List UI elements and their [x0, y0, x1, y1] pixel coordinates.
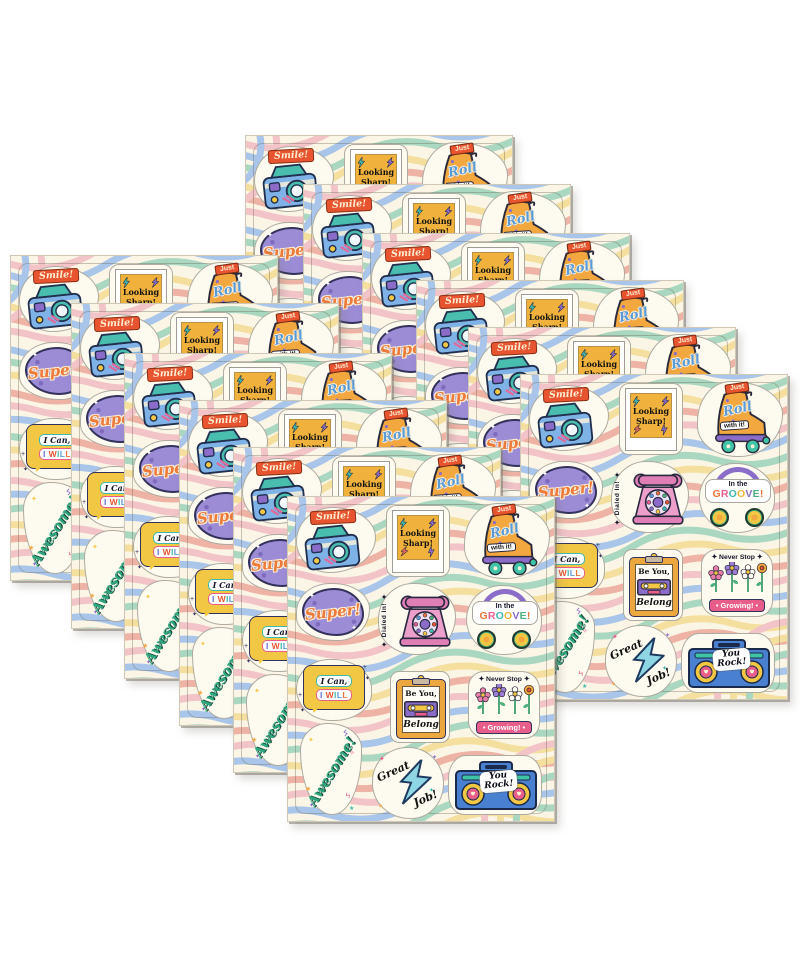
never-stop-label: ✦ Never Stop ✦	[469, 675, 539, 683]
groove-label: In the GROOVE!	[705, 479, 771, 503]
lightning-bolt-icon: ϟ	[345, 792, 351, 801]
photo-frame: Looking Sharp!	[392, 510, 444, 573]
sticker-super: Super!	[296, 583, 370, 641]
sticker-sheet: Smile!	[520, 374, 788, 700]
sparkle-icon: ✦	[429, 788, 434, 794]
sparkle-icon: ✦	[662, 666, 667, 672]
you-rock-label: You Rock!	[712, 647, 751, 671]
sticker-great-job: Great Job! ✦ ✦ ✦ ✦	[605, 625, 677, 697]
sparkle-icon: ✦	[200, 641, 206, 648]
sparkle-icon: ✦	[145, 594, 151, 601]
sticker-looking-sharp: Looking Sharp!	[619, 383, 683, 455]
cassette-tape-icon	[637, 579, 671, 596]
dialed-in-label: ✦ Dialed In! ✦	[381, 590, 389, 650]
sparkle-icon: ✦	[92, 544, 98, 551]
i-can-label: I Can,	[316, 675, 353, 687]
sticker-you-rock: You Rock!	[448, 755, 542, 815]
sparkle-icon: ✧	[349, 750, 355, 757]
sparkle-icon: ✦	[146, 660, 151, 666]
star-icon: ★	[197, 690, 203, 697]
belong-label: Belong	[636, 598, 672, 608]
sticker-in-the-groove: In the GROOVE!	[699, 463, 775, 533]
sticker-i-can-i-will: I Can, I WILL + ✦ + ✦	[296, 659, 372, 721]
sparkle-icon: ✦	[432, 755, 437, 761]
clipboard-icon: Be You, Belong	[629, 557, 679, 617]
i-will-label: I WILL	[39, 448, 75, 460]
sparkle-icon: ✦	[246, 659, 251, 665]
headphone-cup-icon	[512, 630, 531, 649]
star-icon: ★	[89, 593, 95, 600]
sparkle-icon: +	[298, 692, 302, 699]
headphone-cup-icon	[745, 508, 764, 527]
sparkle-icon: ✦	[93, 610, 98, 616]
sticker-be-you-belong: Be You, Belong	[390, 671, 450, 743]
sticker-dialed-in: ✦ Dialed In! ✦	[611, 461, 689, 533]
growing-banner: • Growing! •	[709, 599, 765, 612]
flowers-icon	[707, 562, 769, 593]
looking-sharp-label: Looking Sharp!	[398, 529, 438, 548]
sparkle-icon: ✦	[254, 688, 260, 695]
lightning-bolt-icon: ϟ	[578, 670, 584, 679]
polaroid-camera-icon	[532, 398, 599, 454]
sparkle-icon: ✦	[612, 634, 618, 641]
star-icon: ★	[251, 737, 257, 744]
sticker-sheet: Smile!	[287, 496, 555, 822]
sparkle-icon: ✦	[665, 633, 670, 639]
purple-splat-icon: Super!	[302, 588, 364, 636]
sparkle-icon: ✦	[378, 804, 383, 810]
sparkle-icon: +	[363, 664, 367, 671]
product-photo-sticker-sheet-pack: Smile!	[0, 0, 800, 960]
sparkle-icon: ✦	[379, 756, 385, 763]
i-will-label: I WILL	[316, 689, 352, 701]
sparkle-icon: +	[21, 451, 25, 458]
rotary-phone-icon	[397, 590, 453, 650]
star-icon: ★	[582, 684, 587, 690]
sticker-you-rock: You Rock!	[681, 633, 775, 693]
speech-bubble-icon: I Can, I WILL	[303, 665, 365, 710]
sticker-be-you-belong: Be You, Belong	[623, 549, 683, 621]
never-stop-label: ✦ Never Stop ✦	[702, 553, 772, 561]
sticker-looking-sharp: Looking Sharp!	[386, 505, 450, 577]
headphone-cup-icon	[477, 630, 496, 649]
sparkle-icon: +	[135, 549, 139, 556]
sticker-dialed-in: ✦ Dialed In! ✦	[378, 583, 456, 655]
sparkle-icon: ✧	[582, 628, 588, 635]
headphone-cup-icon	[710, 508, 729, 527]
cassette-tape-icon	[404, 701, 438, 718]
sparkle-icon: ✦	[137, 565, 142, 571]
clipboard-icon: Be You, Belong	[396, 679, 446, 739]
sticker-just-roll-with-it: Just Roll with it!	[464, 503, 550, 579]
sticker-never-stop-growing: ✦ Never Stop ✦	[701, 549, 773, 617]
sparkle-icon: ✦	[365, 676, 370, 682]
groove-label: In the GROOVE!	[472, 601, 538, 625]
sticker-smile: Smile!	[296, 507, 376, 573]
super-label: Super!	[302, 587, 364, 637]
sparkle-icon: +	[244, 643, 248, 650]
sparkle-icon: ✦	[611, 682, 616, 688]
sparkle-icon: +	[596, 542, 600, 549]
sparkle-icon: ✦	[308, 737, 314, 744]
sparkle-icon: ✦	[23, 467, 28, 473]
sparkle-icon: ✦	[598, 554, 603, 560]
sparkle-icon: ✦	[300, 708, 305, 714]
rotary-phone-icon	[630, 468, 686, 528]
star-icon: ★	[142, 643, 148, 650]
be-you-label: Be You,	[638, 567, 670, 576]
star-icon: ★	[349, 806, 354, 812]
sparkle-icon: +	[190, 596, 194, 603]
belong-label: Belong	[403, 720, 439, 730]
sticker-in-the-groove: In the GROOVE!	[466, 585, 542, 655]
sparkle-icon: ✦	[192, 612, 197, 618]
sparkle-icon: ✦	[31, 496, 37, 503]
growing-banner: • Growing! •	[476, 721, 532, 734]
sticker-just-roll-with-it: Just Roll with it!	[697, 381, 783, 457]
dialed-in-label: ✦ Dialed In! ✦	[614, 468, 622, 528]
sparkle-icon: ✦	[201, 707, 206, 713]
you-rock-label: You Rock!	[479, 769, 518, 793]
star-icon: ★	[28, 545, 34, 552]
sheet-stack: Smile!	[0, 0, 800, 960]
polaroid-camera-icon	[299, 520, 366, 576]
be-you-label: Be You,	[405, 689, 437, 698]
star-icon: ★	[305, 786, 311, 793]
photo-frame: Looking Sharp!	[625, 388, 677, 451]
sparkle-icon: ✦	[255, 754, 260, 760]
i-can-label: I Can,	[39, 434, 76, 446]
sparkle-icon: +	[82, 499, 86, 506]
sparkle-icon: ✦	[309, 803, 314, 809]
flowers-icon	[474, 684, 536, 715]
sticker-great-job: Great Job! ✦ ✦ ✦ ✦	[372, 747, 444, 819]
sparkle-icon: ✦	[84, 515, 89, 521]
sticker-smile: Smile!	[529, 385, 609, 451]
looking-sharp-label: Looking Sharp!	[631, 407, 671, 426]
sticker-never-stop-growing: ✦ Never Stop ✦	[468, 671, 540, 739]
sparkle-icon: ✦	[32, 562, 37, 568]
